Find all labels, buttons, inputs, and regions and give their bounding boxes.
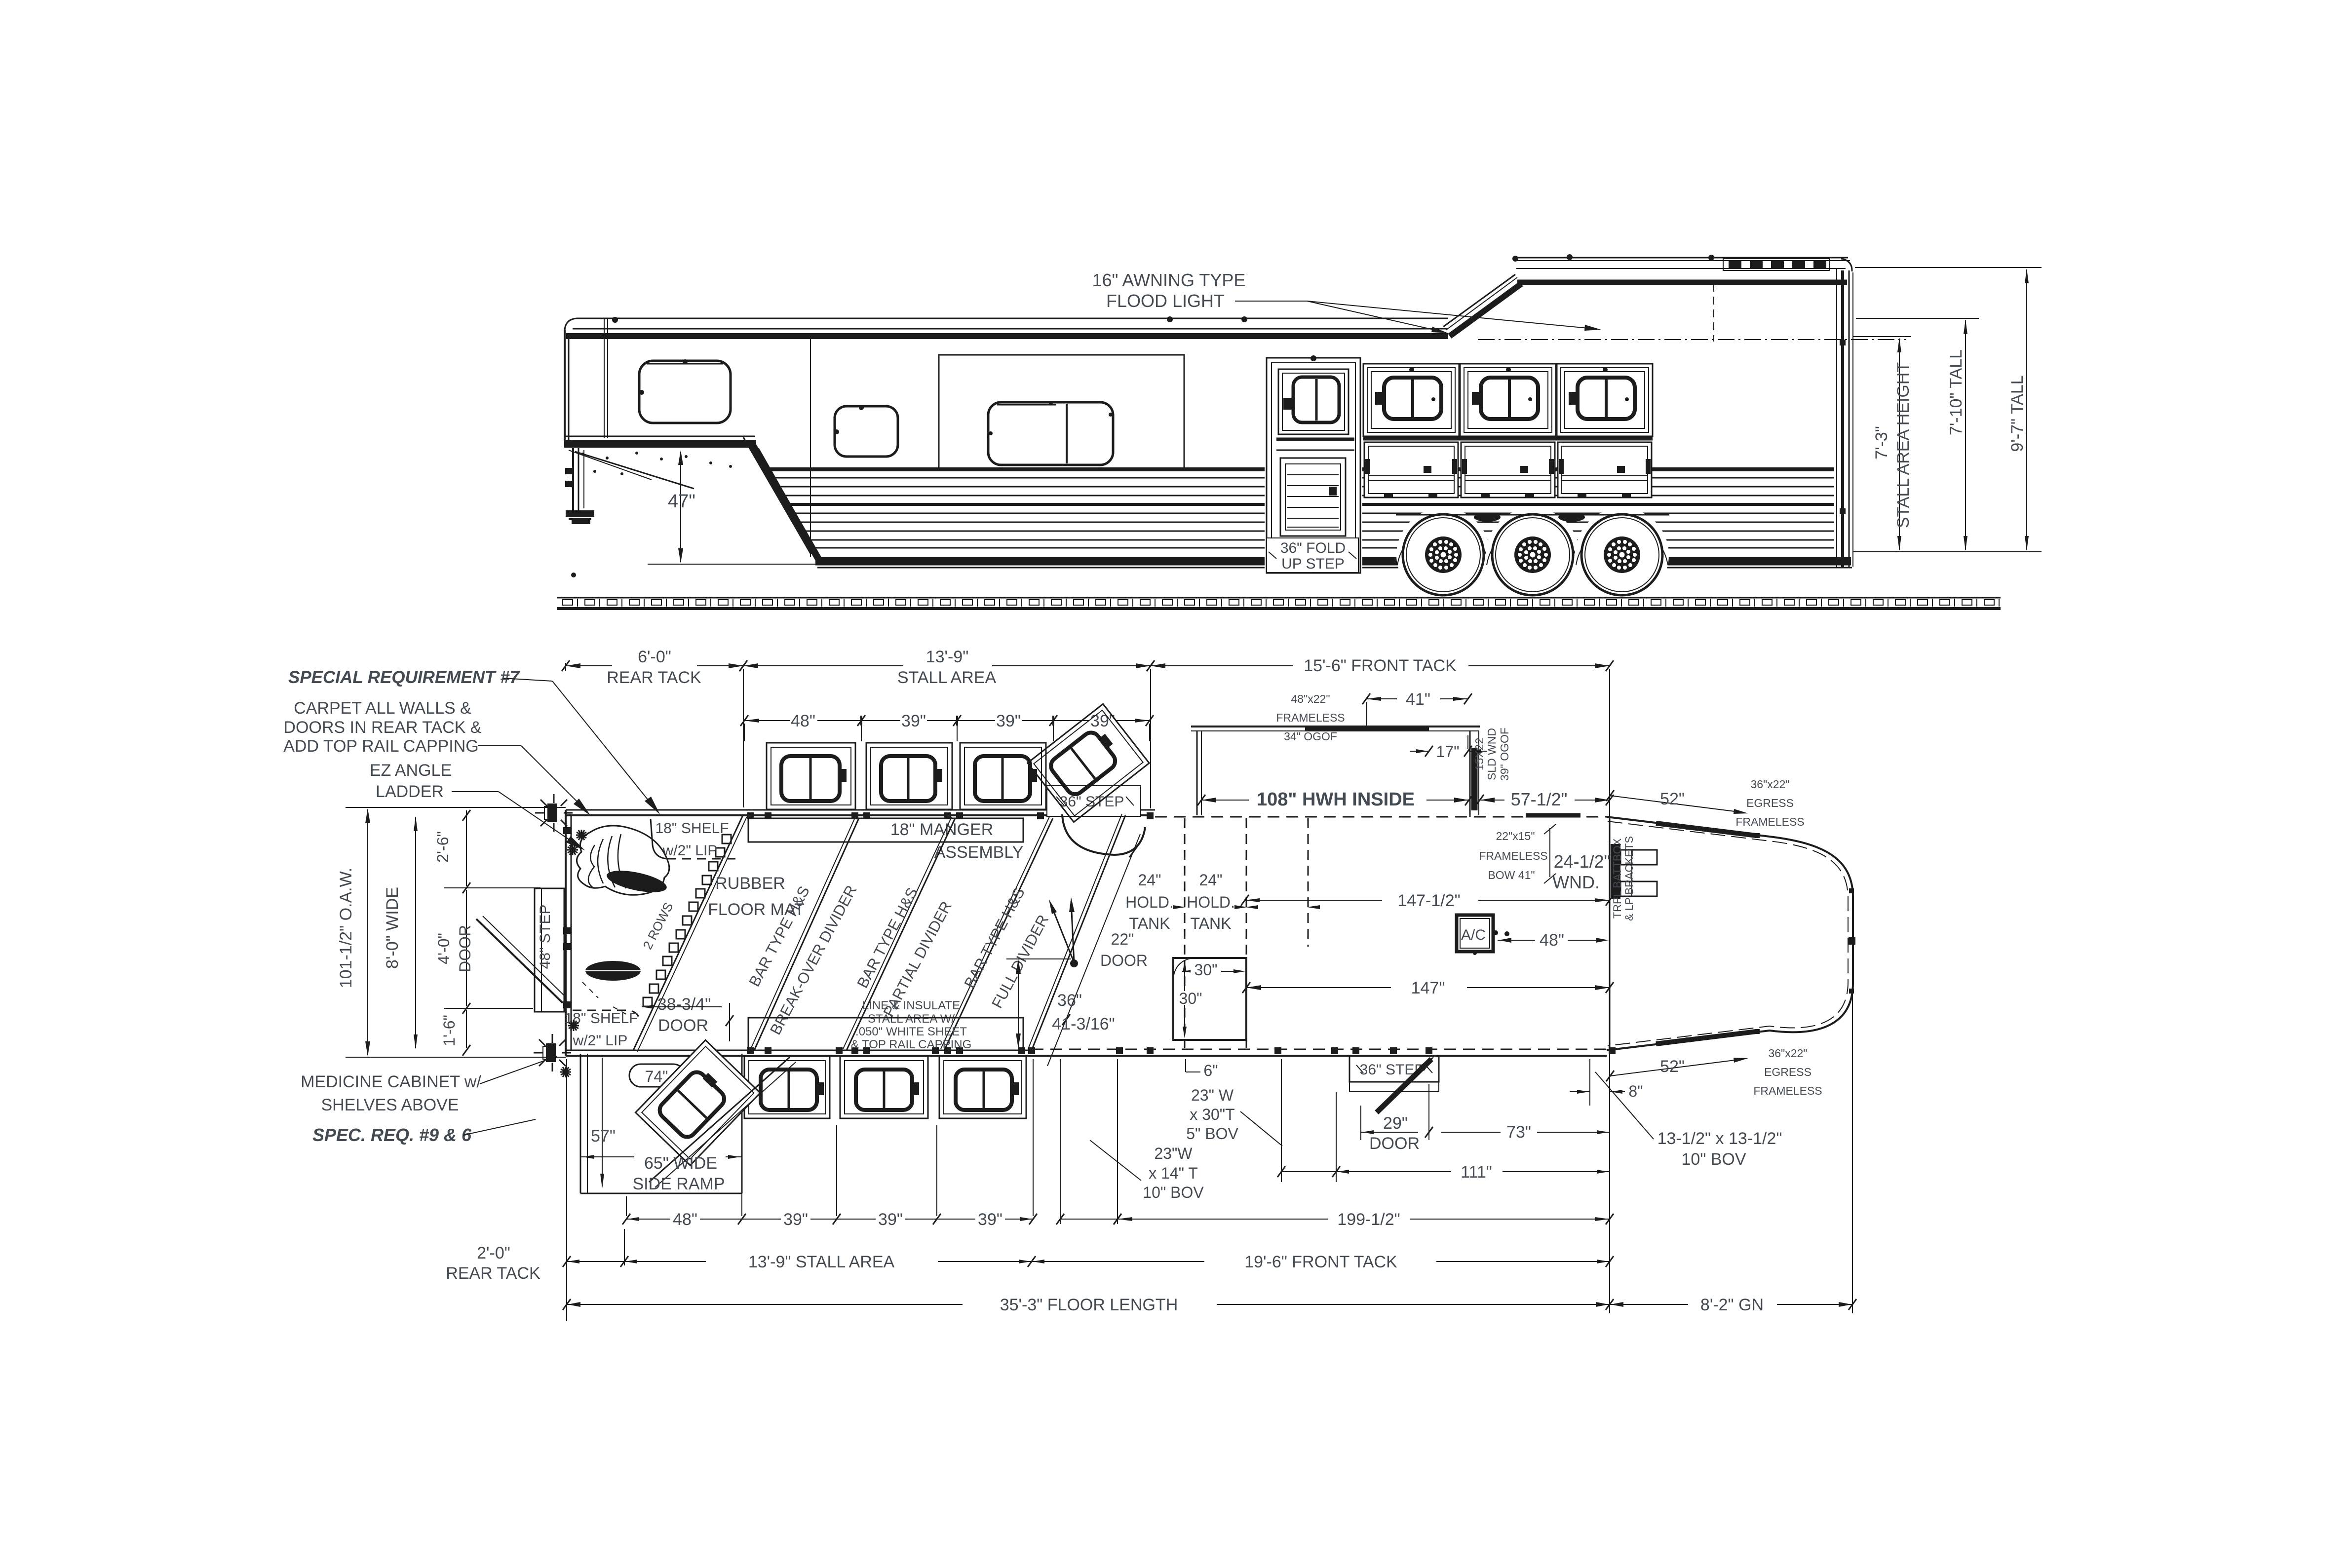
svg-text:18" SHELF: 18" SHELF xyxy=(655,820,729,837)
svg-text:MEDICINE CABINET w/: MEDICINE CABINET w/ xyxy=(301,1072,481,1091)
svg-text:TANK: TANK xyxy=(1191,915,1232,932)
svg-text:39": 39" xyxy=(783,1210,808,1229)
svg-text:BOW 41": BOW 41" xyxy=(1488,869,1535,881)
svg-text:34" OGOF: 34" OGOF xyxy=(1284,730,1337,743)
svg-text:16" AWNING TYPE: 16" AWNING TYPE xyxy=(1092,270,1246,290)
svg-text:47": 47" xyxy=(668,491,695,512)
svg-text:DOOR: DOOR xyxy=(1369,1134,1420,1153)
svg-text:13-1/2" x 13-1/2": 13-1/2" x 13-1/2" xyxy=(1657,1129,1782,1148)
svg-text:23" W: 23" W xyxy=(1191,1086,1234,1104)
svg-text:39": 39" xyxy=(996,712,1021,730)
svg-text:UP STEP: UP STEP xyxy=(1281,556,1345,572)
svg-text:DOOR: DOOR xyxy=(456,925,474,972)
svg-text:TRPL BATTBOX: TRPL BATTBOX xyxy=(1611,838,1623,918)
svg-text:FLOOD LIGHT: FLOOD LIGHT xyxy=(1106,291,1225,311)
svg-text:57": 57" xyxy=(591,1127,616,1146)
svg-text:SIDE RAMP: SIDE RAMP xyxy=(632,1175,725,1193)
svg-text:WND.: WND. xyxy=(1552,872,1600,892)
svg-text:199-1/2": 199-1/2" xyxy=(1337,1210,1400,1229)
svg-text:4'-0": 4'-0" xyxy=(435,933,453,964)
svg-text:A/C: A/C xyxy=(1461,927,1486,943)
svg-text:SHELVES ABOVE: SHELVES ABOVE xyxy=(321,1096,459,1114)
svg-text:36"x22": 36"x22" xyxy=(1769,1047,1808,1060)
svg-text:LADDER: LADDER xyxy=(376,782,444,801)
svg-text:w/2" LIP: w/2" LIP xyxy=(573,1033,628,1049)
svg-text:52": 52" xyxy=(1660,1057,1685,1076)
svg-text:5" BOV: 5" BOV xyxy=(1186,1125,1238,1143)
svg-text:111": 111" xyxy=(1461,1163,1492,1182)
svg-text:35'-3" FLOOR LENGTH: 35'-3" FLOOR LENGTH xyxy=(1000,1296,1178,1314)
svg-text:147-1/2": 147-1/2" xyxy=(1397,891,1460,910)
svg-text:HOLD.: HOLD. xyxy=(1125,893,1174,911)
svg-text:SPEC. REQ. #9 & 6: SPEC. REQ. #9 & 6 xyxy=(312,1125,472,1145)
svg-text:TANK: TANK xyxy=(1129,915,1170,932)
svg-text:DOORS IN REAR TACK &: DOORS IN REAR TACK & xyxy=(283,718,481,737)
svg-text:RUBBER: RUBBER xyxy=(715,874,785,893)
svg-text:EZ ANGLE: EZ ANGLE xyxy=(370,761,452,780)
svg-text:.050" WHITE SHEET: .050" WHITE SHEET xyxy=(855,1025,967,1038)
svg-text:10" BOV: 10" BOV xyxy=(1681,1150,1746,1169)
svg-text:7'-10" TALL: 7'-10" TALL xyxy=(1947,349,1966,435)
svg-text:STALL AREA W/: STALL AREA W/ xyxy=(868,1012,955,1026)
svg-text:STALL AREA: STALL AREA xyxy=(897,668,997,687)
svg-text:22": 22" xyxy=(1111,930,1134,948)
svg-text:HOLD.: HOLD. xyxy=(1187,893,1235,911)
svg-text:41-3/16": 41-3/16" xyxy=(1052,1015,1115,1033)
svg-text:39": 39" xyxy=(901,712,926,730)
svg-text:38-3/4": 38-3/4" xyxy=(657,995,711,1014)
svg-text:6": 6" xyxy=(1203,1062,1218,1079)
svg-text:73": 73" xyxy=(1506,1123,1531,1142)
svg-text:19'-6" FRONT TACK: 19'-6" FRONT TACK xyxy=(1244,1253,1397,1271)
svg-text:& LP BRACKETS: & LP BRACKETS xyxy=(1623,836,1635,921)
svg-text:FRAMELESS: FRAMELESS xyxy=(1753,1084,1822,1097)
svg-text:48": 48" xyxy=(791,712,815,730)
svg-text:18" MANGER: 18" MANGER xyxy=(890,820,994,839)
svg-text:24-1/2": 24-1/2" xyxy=(1554,851,1611,872)
svg-text:48": 48" xyxy=(1540,931,1564,950)
svg-text:REAR TACK: REAR TACK xyxy=(446,1264,540,1283)
svg-text:1'-6": 1'-6" xyxy=(440,1015,458,1046)
svg-text:10" BOV: 10" BOV xyxy=(1143,1184,1204,1201)
svg-text:147": 147" xyxy=(1411,979,1445,997)
svg-text:ASSEMBLY: ASSEMBLY xyxy=(934,843,1024,862)
svg-text:ADD TOP RAIL CAPPING: ADD TOP RAIL CAPPING xyxy=(283,737,479,756)
svg-text:36"x22": 36"x22" xyxy=(1751,778,1790,791)
svg-text:24": 24" xyxy=(1138,871,1161,889)
svg-text:2'-0": 2'-0" xyxy=(477,1244,510,1262)
svg-text:108" HWH INSIDE: 108" HWH INSIDE xyxy=(1257,789,1415,810)
svg-text:48" STEP: 48" STEP xyxy=(537,905,553,969)
svg-text:30": 30" xyxy=(1195,961,1218,979)
svg-text:SPECIAL REQUIREMENT #7: SPECIAL REQUIREMENT #7 xyxy=(288,668,520,687)
svg-text:39": 39" xyxy=(878,1210,903,1229)
svg-text:15'-6" FRONT TACK: 15'-6" FRONT TACK xyxy=(1304,656,1457,675)
svg-text:x 30"T: x 30"T xyxy=(1190,1106,1234,1123)
svg-text:x 14" T: x 14" T xyxy=(1149,1164,1198,1182)
svg-text:8'-2" GN: 8'-2" GN xyxy=(1700,1296,1764,1314)
svg-text:17": 17" xyxy=(1436,743,1460,761)
svg-text:41": 41" xyxy=(1406,690,1430,709)
svg-text:2'-6": 2'-6" xyxy=(434,831,452,863)
svg-text:FRAMELESS: FRAMELESS xyxy=(1479,849,1547,862)
svg-text:57-1/2": 57-1/2" xyxy=(1511,789,1568,809)
svg-text:w/2" LIP: w/2" LIP xyxy=(662,842,718,859)
svg-text:CARPET ALL WALLS &: CARPET ALL WALLS & xyxy=(294,699,471,718)
svg-text:13'-9": 13'-9" xyxy=(926,648,969,666)
svg-text:FLOOR MAT: FLOOR MAT xyxy=(708,900,805,919)
svg-text:LINE & INSULATE: LINE & INSULATE xyxy=(862,999,960,1012)
svg-text:48": 48" xyxy=(673,1210,697,1229)
svg-text:SLD WND: SLD WND xyxy=(1485,728,1498,780)
svg-text:24": 24" xyxy=(1199,871,1223,889)
svg-text:STALL AREA HEIGHT: STALL AREA HEIGHT xyxy=(1894,362,1913,528)
svg-text:39": 39" xyxy=(978,1210,1002,1229)
svg-text:FRAMELESS: FRAMELESS xyxy=(1735,815,1804,828)
svg-text:48"x22": 48"x22" xyxy=(1291,692,1330,705)
svg-text:& TOP RAIL CAPPING: & TOP RAIL CAPPING xyxy=(851,1038,972,1051)
svg-text:39" OGOF: 39" OGOF xyxy=(1498,727,1511,781)
svg-text:15X22: 15X22 xyxy=(1473,738,1486,771)
svg-text:DOOR: DOOR xyxy=(658,1016,708,1035)
svg-text:EGRESS: EGRESS xyxy=(1764,1066,1811,1078)
svg-text:6'-0": 6'-0" xyxy=(638,648,671,666)
svg-text:29": 29" xyxy=(1383,1114,1408,1133)
svg-text:EGRESS: EGRESS xyxy=(1746,797,1794,809)
svg-text:9'-7" TALL: 9'-7" TALL xyxy=(2008,375,2027,452)
svg-text:23"W: 23"W xyxy=(1154,1145,1193,1162)
svg-text:22"x15": 22"x15" xyxy=(1496,830,1535,842)
svg-text:8": 8" xyxy=(1628,1082,1643,1100)
svg-text:30": 30" xyxy=(1179,990,1202,1007)
svg-text:REAR TACK: REAR TACK xyxy=(607,668,701,687)
svg-text:101-1/2" O.A.W.: 101-1/2" O.A.W. xyxy=(337,868,355,989)
svg-text:13'-9" STALL AREA: 13'-9" STALL AREA xyxy=(748,1253,895,1271)
svg-text:65" WIDE: 65" WIDE xyxy=(644,1154,717,1173)
svg-text:36": 36" xyxy=(1057,991,1082,1010)
svg-text:52": 52" xyxy=(1660,790,1685,808)
svg-text:8'-0" WIDE: 8'-0" WIDE xyxy=(383,887,402,969)
svg-text:7'-3": 7'-3" xyxy=(1872,426,1891,459)
svg-text:DOOR: DOOR xyxy=(1100,952,1148,969)
svg-text:FRAMELESS: FRAMELESS xyxy=(1276,711,1345,724)
svg-text:36" FOLD: 36" FOLD xyxy=(1280,540,1346,556)
